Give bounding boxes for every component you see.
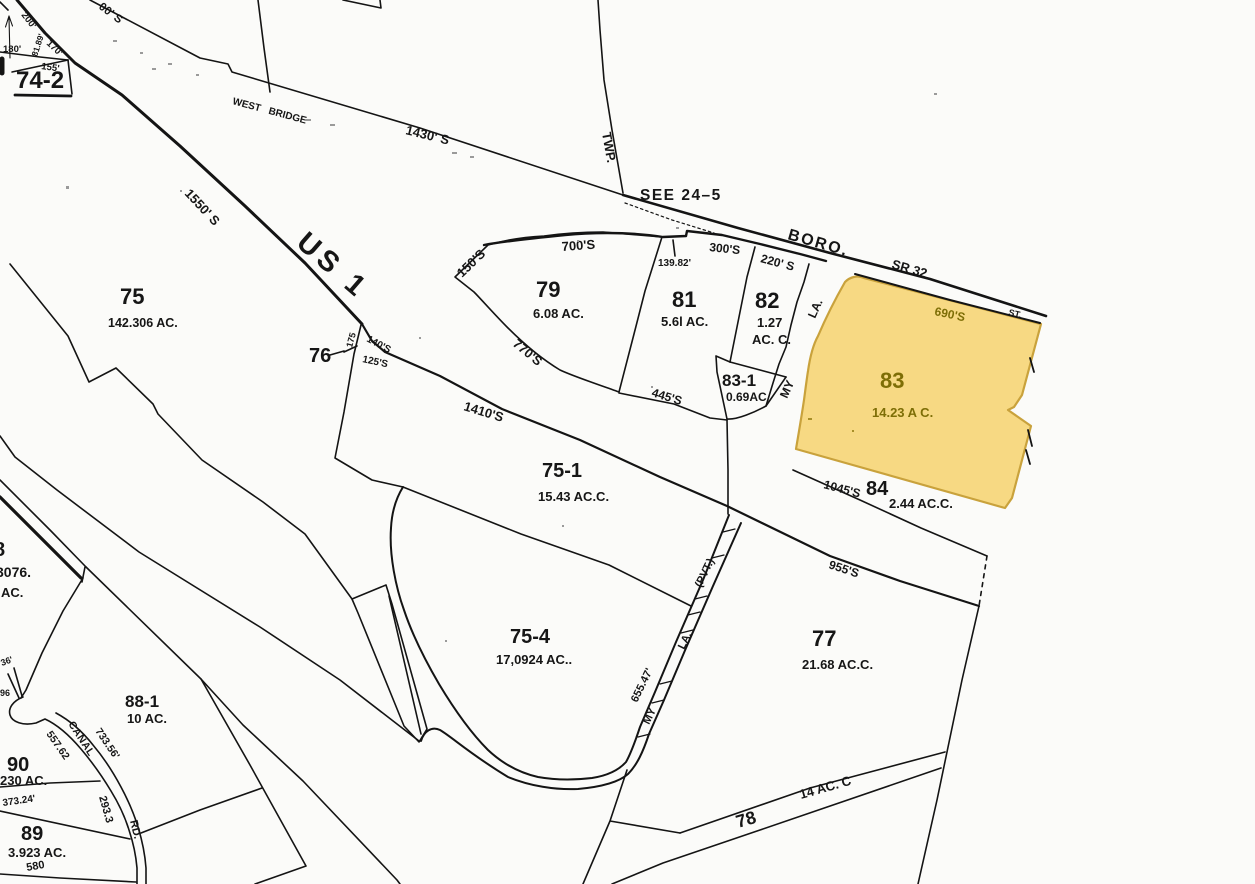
svg-text:2.44 AC.C.: 2.44 AC.C.: [889, 496, 953, 511]
svg-text:75-1: 75-1: [542, 460, 582, 482]
svg-text:79: 79: [536, 277, 560, 302]
svg-text:139.82': 139.82': [658, 258, 691, 269]
svg-text:75-4: 75-4: [510, 626, 551, 648]
svg-text:AC.: AC.: [1, 585, 23, 600]
svg-text:142.306 AC.: 142.306 AC.: [108, 316, 178, 330]
svg-text:0.69AC: 0.69AC: [726, 390, 767, 404]
svg-text:3.923 AC.: 3.923 AC.: [8, 845, 66, 860]
svg-text:77: 77: [812, 626, 836, 651]
svg-text:AC. C.: AC. C.: [752, 332, 791, 347]
svg-text:83: 83: [880, 368, 904, 393]
svg-text:17,0924 AC..: 17,0924 AC..: [496, 652, 572, 667]
svg-text:88-1: 88-1: [125, 692, 159, 711]
svg-text:1.27: 1.27: [757, 315, 782, 330]
svg-text:5.6l AC.: 5.6l AC.: [661, 314, 708, 329]
svg-text:6.08 AC.: 6.08 AC.: [533, 306, 584, 321]
svg-text:SEE 24–5: SEE 24–5: [640, 187, 722, 204]
svg-text:700'S: 700'S: [561, 237, 596, 254]
svg-text:10 AC.: 10 AC.: [127, 711, 167, 726]
svg-text:96: 96: [0, 688, 10, 698]
svg-text:180': 180': [3, 44, 21, 55]
svg-text:76: 76: [309, 345, 331, 367]
svg-text:75: 75: [120, 284, 144, 309]
svg-text:8: 8: [0, 539, 5, 561]
svg-text:89: 89: [21, 823, 43, 845]
svg-text:15.43 AC.C.: 15.43 AC.C.: [538, 489, 609, 504]
svg-text:14.23 A C.: 14.23 A C.: [872, 405, 933, 420]
svg-text:3076.: 3076.: [0, 564, 31, 580]
svg-text:83-1: 83-1: [722, 371, 756, 390]
svg-text:230 AC.: 230 AC.: [0, 773, 47, 788]
svg-text:21.68 AC.C.: 21.68 AC.C.: [802, 657, 873, 672]
svg-text:82: 82: [755, 288, 779, 313]
svg-text:81: 81: [672, 287, 696, 312]
svg-text:84: 84: [866, 478, 889, 500]
